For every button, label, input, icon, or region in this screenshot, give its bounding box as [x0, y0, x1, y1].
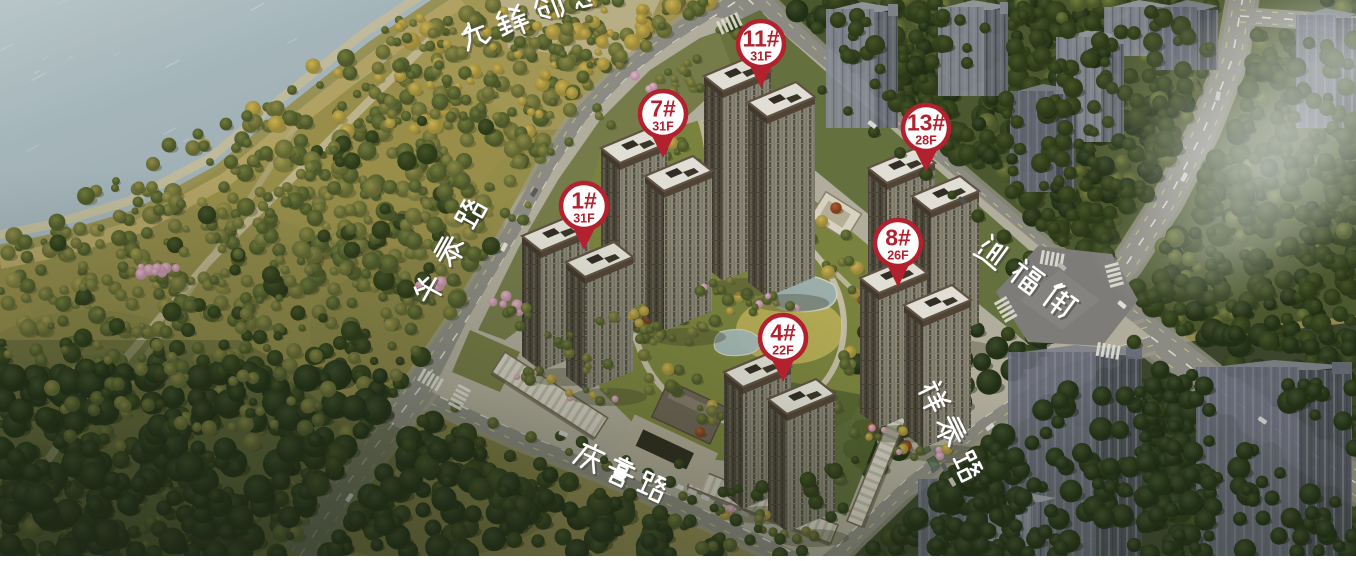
- svg-text:8#: 8#: [885, 225, 911, 251]
- svg-text:13#: 13#: [907, 110, 946, 136]
- svg-text:31F: 31F: [750, 50, 772, 64]
- svg-text:28F: 28F: [915, 134, 937, 148]
- svg-text:4#: 4#: [770, 320, 796, 346]
- svg-text:26F: 26F: [887, 249, 909, 263]
- svg-text:1#: 1#: [571, 188, 597, 214]
- svg-text:22F: 22F: [772, 344, 794, 358]
- svg-text:11#: 11#: [742, 26, 779, 52]
- svg-text:31F: 31F: [652, 120, 674, 134]
- svg-text:31F: 31F: [573, 212, 595, 226]
- svg-text:7#: 7#: [650, 96, 676, 122]
